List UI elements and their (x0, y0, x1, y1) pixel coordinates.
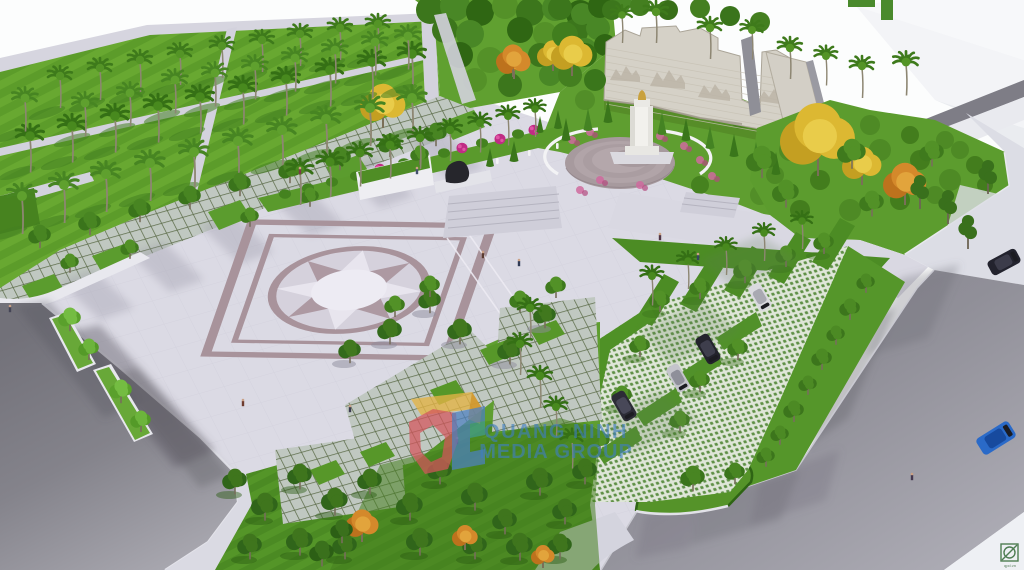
svg-text:QUANG NINH: QUANG NINH (484, 421, 628, 443)
svg-text:qpd.vn: qpd.vn (1004, 563, 1016, 568)
svg-text:MEDIA GROUP: MEDIA GROUP (479, 441, 633, 463)
